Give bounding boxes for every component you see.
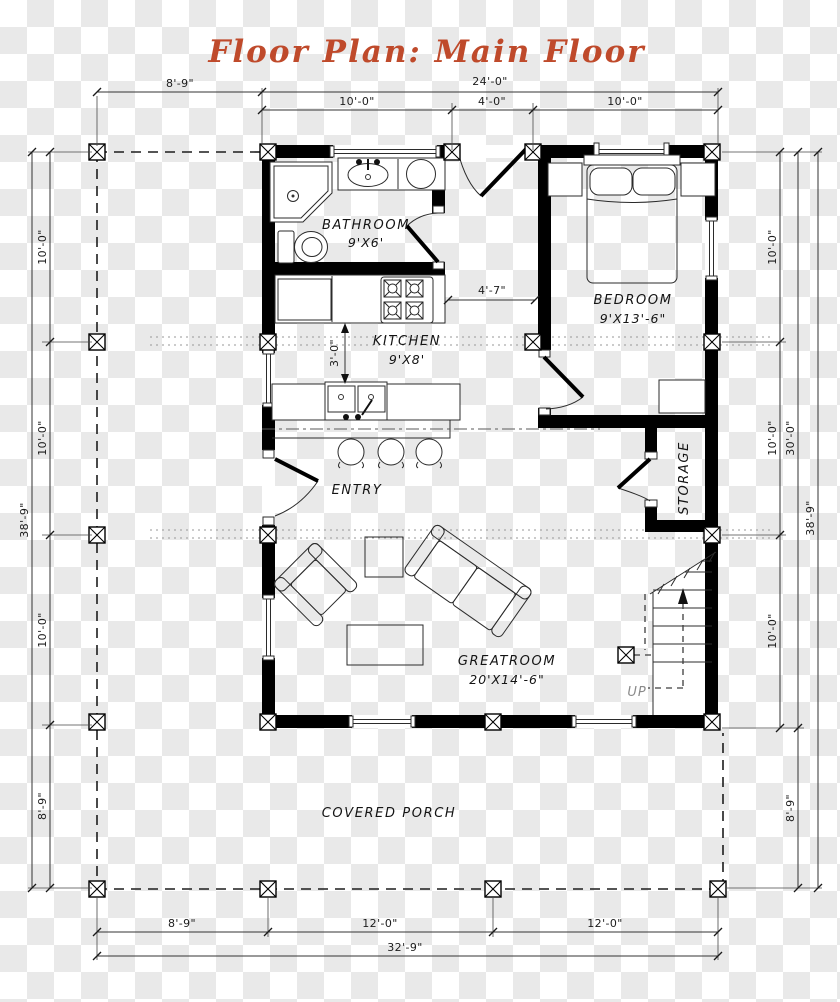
toilet bbox=[278, 231, 328, 263]
bottom-window-left bbox=[349, 715, 415, 728]
bottom-window-right bbox=[572, 715, 636, 728]
kitchen-size: 9'X8' bbox=[389, 352, 425, 367]
post-symbol bbox=[485, 714, 501, 730]
dim-top-total: 24'-0" bbox=[472, 75, 507, 88]
dim-right-house: 30'-0" bbox=[784, 420, 797, 455]
dim-bottom-seg2: 12'-0" bbox=[362, 917, 397, 930]
bedroom-furniture bbox=[548, 155, 715, 413]
dim-right-total: 38'-9" bbox=[804, 500, 817, 535]
post-symbol bbox=[260, 714, 276, 730]
dim-bottom-seg1: 8'-9" bbox=[168, 917, 196, 930]
dim-left-porch: 8'-9" bbox=[36, 792, 49, 820]
post-symbol bbox=[260, 334, 276, 350]
dim-top-seg1: 10'-0" bbox=[339, 95, 374, 108]
post-symbol bbox=[704, 144, 720, 160]
dresser bbox=[659, 380, 705, 413]
entry-door bbox=[262, 450, 318, 525]
dim-left-seg2: 10'-0" bbox=[36, 420, 49, 455]
post-symbol bbox=[704, 334, 720, 350]
bathroom-window bbox=[330, 145, 440, 158]
post-symbol bbox=[260, 527, 276, 543]
greatroom-size: 20'X14'-6" bbox=[469, 672, 544, 687]
post-symbol bbox=[260, 881, 276, 897]
storage-door bbox=[618, 452, 657, 507]
corner-shower bbox=[270, 162, 332, 222]
floor-plan-page: { "title": "Floor Plan: Main Floor", "co… bbox=[0, 0, 840, 1002]
dim-bottom-total: 32'-9" bbox=[387, 941, 422, 954]
porch-label: COVERED PORCH bbox=[322, 806, 457, 821]
post-symbol bbox=[89, 881, 105, 897]
dim-left-seg1: 10'-0" bbox=[36, 229, 49, 264]
island-sink bbox=[325, 382, 387, 420]
side-table bbox=[365, 537, 403, 577]
dim-left-total: 38'-9" bbox=[18, 502, 31, 537]
dim-right-seg2: 10'-0" bbox=[766, 420, 779, 455]
dim-right-porch: 8'-9" bbox=[784, 794, 797, 822]
greatroom-label: GREATROOM bbox=[458, 654, 556, 669]
structural-posts bbox=[89, 144, 726, 897]
bar-stools bbox=[338, 439, 442, 468]
page-title: Floor Plan: Main Floor bbox=[207, 34, 646, 70]
dim-left-seg3: 10'-0" bbox=[36, 612, 49, 647]
stair-area bbox=[653, 553, 714, 715]
dim-right-seg3: 10'-0" bbox=[766, 613, 779, 648]
interior-walls bbox=[275, 158, 718, 532]
dim-bottom-seg3: 12'-0" bbox=[587, 917, 622, 930]
kitchen-label: KITCHEN bbox=[373, 334, 441, 349]
dim-top-porch: 8'-9" bbox=[166, 77, 194, 90]
bathroom-door bbox=[407, 206, 444, 269]
stairs-up-label: UP bbox=[627, 685, 646, 700]
bedroom-label: BEDROOM bbox=[593, 293, 672, 308]
entry-label: ENTRY bbox=[332, 483, 383, 498]
bedroom-door bbox=[539, 350, 583, 415]
round-basin bbox=[407, 160, 436, 189]
storage-label: STORAGE bbox=[677, 441, 692, 515]
bedroom-size: 9'X13'-6" bbox=[600, 311, 667, 326]
armchair bbox=[272, 541, 358, 627]
greatroom-furniture bbox=[272, 523, 533, 665]
back-door bbox=[458, 145, 530, 196]
post-symbol bbox=[260, 144, 276, 160]
bathroom-size: 9'X6' bbox=[348, 235, 384, 250]
dim-top-seg3: 10'-0" bbox=[607, 95, 642, 108]
post-symbol bbox=[704, 714, 720, 730]
bed bbox=[584, 155, 680, 283]
bathroom-label: BATHROOM bbox=[322, 218, 410, 233]
dim-hall-width: 4'-7" bbox=[478, 284, 506, 297]
post-symbol bbox=[89, 714, 105, 730]
post-symbol bbox=[525, 334, 541, 350]
dimension-labels: 8'-9" 24'-0" 10'-0" 4'-0" 10'-0" 8'-9" 1… bbox=[18, 75, 817, 954]
nightstand-left bbox=[548, 163, 582, 196]
refrigerator bbox=[278, 279, 331, 320]
dim-top-seg2: 4'-0" bbox=[478, 95, 506, 108]
stove bbox=[381, 277, 433, 323]
greatroom-window bbox=[262, 595, 275, 660]
nightstand-right bbox=[681, 163, 715, 196]
vanity-sink bbox=[338, 158, 445, 190]
sofa bbox=[403, 523, 533, 638]
floor-plan-svg: Floor Plan: Main Floor bbox=[0, 0, 840, 1002]
bedroom-right-window bbox=[705, 217, 718, 280]
post-symbol bbox=[618, 647, 634, 663]
post-symbol bbox=[704, 527, 720, 543]
dim-right-seg1: 10'-0" bbox=[766, 229, 779, 264]
post-symbol bbox=[710, 881, 726, 897]
post-symbol bbox=[485, 881, 501, 897]
coffee-table bbox=[347, 625, 423, 665]
dim-island-clearance: 3'-0" bbox=[328, 339, 341, 367]
